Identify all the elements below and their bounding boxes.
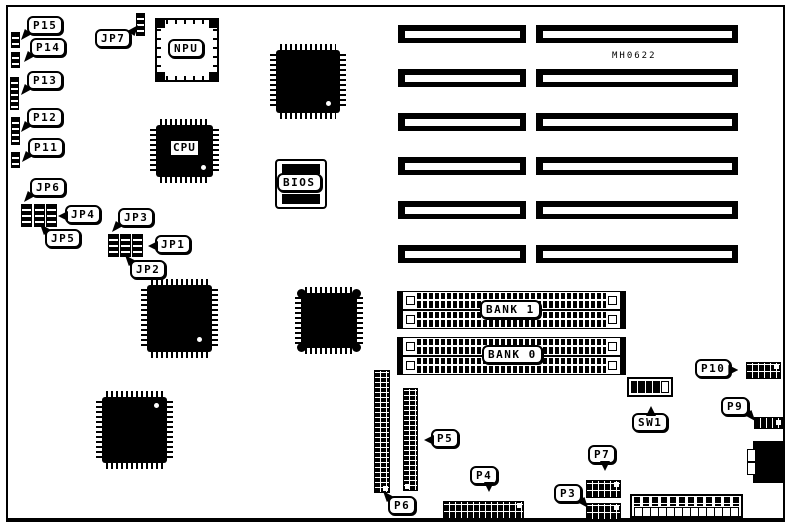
jumper-jp3 xyxy=(108,234,119,257)
pin1-dot xyxy=(326,101,331,106)
socket-corner xyxy=(209,20,217,28)
callout-text: JP3 xyxy=(124,211,148,224)
callout-text: P9 xyxy=(727,400,743,413)
simm-latch xyxy=(406,342,415,351)
cpu-label: CPU xyxy=(171,141,198,155)
jumper-jp6 xyxy=(21,204,32,227)
socket-corner xyxy=(157,20,165,28)
socket-ticks xyxy=(213,29,217,71)
connector-p3 xyxy=(586,503,621,520)
chip-corner xyxy=(352,343,361,352)
socket-ticks xyxy=(166,76,208,80)
key-pin xyxy=(776,420,781,425)
simm-end xyxy=(620,357,625,374)
callout-p5: P5 xyxy=(431,429,459,448)
key-pin xyxy=(614,482,619,487)
callout-jp5: JP5 xyxy=(45,229,81,248)
callout-text: P11 xyxy=(34,141,58,154)
connector-p14 xyxy=(11,52,20,68)
callout-text: JP1 xyxy=(161,238,185,251)
connector-p12 xyxy=(11,117,20,145)
expansion-slot xyxy=(536,157,738,175)
switch-pos xyxy=(661,381,669,393)
callout-text: JP4 xyxy=(71,208,95,221)
connector-p10 xyxy=(746,362,781,379)
expansion-slot xyxy=(536,69,738,87)
slot-opening xyxy=(405,75,520,82)
chip-body xyxy=(301,293,357,348)
callout-text: P13 xyxy=(33,74,57,87)
slot-opening xyxy=(405,251,520,258)
jumper-jp2 xyxy=(120,234,131,257)
socket-ticks xyxy=(166,20,208,24)
simm-latch xyxy=(608,361,617,370)
board-part-number: MH0622 xyxy=(612,51,657,61)
connector-p4 xyxy=(443,501,524,519)
key-pin xyxy=(383,486,388,491)
callout-jp1: JP1 xyxy=(155,235,191,254)
jumper-jp1 xyxy=(132,234,143,257)
simm-end xyxy=(620,311,625,328)
callout-p9: P9 xyxy=(721,397,749,416)
callout-jp6: JP6 xyxy=(30,178,66,197)
callout-text: P5 xyxy=(437,432,453,445)
key-pin xyxy=(614,505,619,510)
connector-p6 xyxy=(374,370,390,493)
pin1-dot xyxy=(154,403,159,408)
callout-jp7: JP7 xyxy=(95,29,131,48)
slot-opening xyxy=(543,207,732,214)
slot-opening xyxy=(543,163,732,170)
expansion-slot xyxy=(536,25,738,43)
bank1-label: BANK 1 xyxy=(480,300,541,319)
chip-body xyxy=(147,285,212,352)
connector-p7 xyxy=(586,480,621,498)
simm-latch xyxy=(406,296,415,305)
switch-pos xyxy=(646,381,652,393)
expansion-slot xyxy=(398,25,526,43)
key-pin xyxy=(774,364,779,369)
simm-end xyxy=(398,357,403,374)
simm-end xyxy=(398,311,403,328)
expansion-slot xyxy=(536,201,738,219)
pin-fringe xyxy=(167,401,173,459)
bank0-label: BANK 0 xyxy=(482,345,543,364)
callout-text: SW1 xyxy=(638,416,662,429)
callout-text: P15 xyxy=(33,19,57,32)
callout-text: P14 xyxy=(36,41,60,54)
connector-p11 xyxy=(11,152,20,168)
connector-tab xyxy=(747,462,756,475)
socket-corner xyxy=(209,72,217,80)
callout-p14: P14 xyxy=(30,38,66,57)
callout-text: P7 xyxy=(594,448,610,461)
callout-text: JP7 xyxy=(101,32,125,45)
slot-opening xyxy=(543,31,732,38)
slot-opening xyxy=(543,119,732,126)
callout-text: P3 xyxy=(560,487,576,500)
simm-latch xyxy=(608,315,617,324)
switch-pos xyxy=(638,381,644,393)
callout-p13: P13 xyxy=(27,71,63,90)
qfp-chip xyxy=(295,287,363,354)
bios-label: BIOS xyxy=(277,173,322,192)
chip-corner xyxy=(352,289,361,298)
connector-p9 xyxy=(754,417,783,429)
connector-jp7 xyxy=(136,13,145,36)
expansion-slot xyxy=(398,69,526,87)
slot-opening xyxy=(543,251,732,258)
callout-p11: P11 xyxy=(28,138,64,157)
slot-opening xyxy=(405,163,520,170)
power-divider xyxy=(634,504,739,506)
simm-latch xyxy=(608,296,617,305)
callout-sw1: SW1 xyxy=(632,413,668,432)
callout-text: P4 xyxy=(476,469,492,482)
callout-text: JP6 xyxy=(36,181,60,194)
pin-fringe xyxy=(151,352,208,358)
connector-p13 xyxy=(10,77,19,110)
socket-bar xyxy=(282,194,320,204)
callout-jp4: JP4 xyxy=(65,205,101,224)
pin-fringe xyxy=(213,129,219,173)
pin1-dot xyxy=(201,165,206,170)
pin-fringe xyxy=(212,289,218,348)
expansion-slot xyxy=(398,245,526,263)
key-pin xyxy=(405,484,410,489)
power-connector xyxy=(630,494,743,518)
expansion-slot xyxy=(398,113,526,131)
callout-text: P10 xyxy=(701,362,725,375)
jumper-jp5 xyxy=(34,204,45,227)
callout-p7: P7 xyxy=(588,445,616,464)
key-pin xyxy=(517,503,522,508)
pin-fringe xyxy=(357,297,363,344)
callout-p4: P4 xyxy=(470,466,498,485)
qfp-chip xyxy=(141,279,218,358)
pin-fringe xyxy=(340,54,346,109)
npu-label: NPU xyxy=(168,39,204,58)
chip-corner xyxy=(297,289,306,298)
callout-p15: P15 xyxy=(27,16,63,35)
socket-corner xyxy=(157,72,165,80)
slot-opening xyxy=(405,31,520,38)
callout-text: P6 xyxy=(394,499,410,512)
switch-pos xyxy=(653,381,659,393)
simm-end xyxy=(620,338,625,355)
connector-p5 xyxy=(403,388,418,491)
simm-end xyxy=(398,338,403,355)
callout-text: JP5 xyxy=(51,232,75,245)
callout-p3: P3 xyxy=(554,484,582,503)
callout-p12: P12 xyxy=(27,108,63,127)
simm-end xyxy=(398,292,403,309)
callout-p10: P10 xyxy=(695,359,731,378)
power-pins xyxy=(634,507,739,517)
pin-fringe xyxy=(160,177,209,183)
qfp-chip xyxy=(96,391,173,469)
expansion-slot xyxy=(398,157,526,175)
simm-latch xyxy=(608,342,617,351)
expansion-slot xyxy=(398,201,526,219)
connector-tab xyxy=(747,449,756,462)
switch-pos xyxy=(631,381,637,393)
simm-end xyxy=(620,292,625,309)
callout-text: JP2 xyxy=(136,263,160,276)
callout-text: P12 xyxy=(33,111,57,124)
expansion-slot xyxy=(536,245,738,263)
expansion-slot xyxy=(536,113,738,131)
motherboard-diagram: MH0622 NPU CPU xyxy=(0,0,791,527)
callout-jp3: JP3 xyxy=(118,208,154,227)
connector-p15 xyxy=(11,32,20,48)
pin1-dot xyxy=(197,337,202,342)
callout-p6: P6 xyxy=(388,496,416,515)
socket-ticks xyxy=(157,29,161,71)
power-tabs xyxy=(634,497,739,503)
slot-opening xyxy=(405,207,520,214)
slot-opening xyxy=(405,119,520,126)
dip-switch-sw1 xyxy=(627,377,673,397)
jumper-jp4 xyxy=(46,204,57,227)
simm-latch xyxy=(406,315,415,324)
pin-fringe xyxy=(106,463,163,469)
pin-fringe xyxy=(280,113,336,119)
qfp-chip xyxy=(270,44,346,119)
simm-latch xyxy=(406,361,415,370)
pin-fringe xyxy=(305,348,353,354)
keyboard-connector xyxy=(753,441,784,483)
chip-corner xyxy=(297,343,306,352)
callout-jp2: JP2 xyxy=(130,260,166,279)
slot-opening xyxy=(543,75,732,82)
